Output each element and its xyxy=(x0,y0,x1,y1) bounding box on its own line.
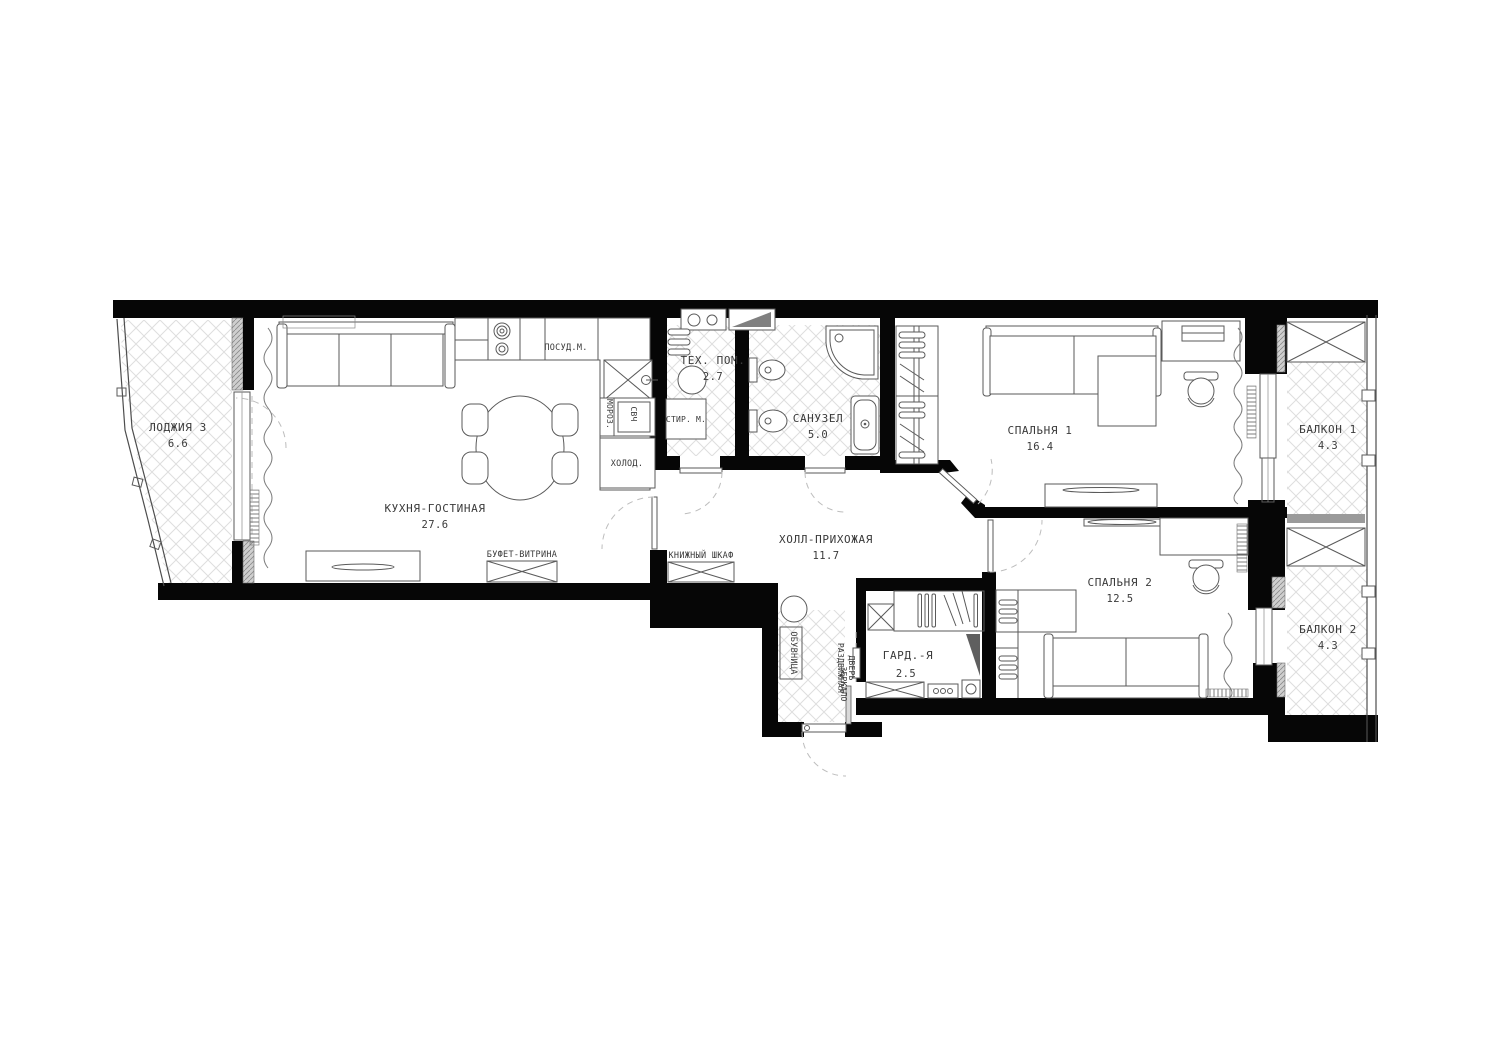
bath-door xyxy=(805,468,845,512)
bookcase xyxy=(668,562,734,582)
room-area-balcony2: 4.3 xyxy=(1318,640,1338,652)
bedroom1-window xyxy=(1260,374,1276,502)
closet-bedroom1 xyxy=(896,326,938,464)
curtain-kitchen xyxy=(264,328,272,568)
bidet-icon xyxy=(749,410,787,432)
chair-bedroom2 xyxy=(1189,560,1223,594)
balcony1-floor xyxy=(1287,362,1367,514)
furniture-bedroom2 xyxy=(996,518,1248,699)
sofa-bedroom2 xyxy=(1044,634,1208,698)
label-freezer: МОРОЗ. xyxy=(605,399,614,429)
buffet-cabinet xyxy=(487,561,557,582)
hangers-icon xyxy=(918,591,978,627)
entry-door xyxy=(802,724,846,776)
label-shoe-cabinet: ОБУВНИЦА xyxy=(788,631,798,674)
room-area-loggia3: 6.6 xyxy=(168,438,188,450)
desk-bedroom1 xyxy=(1162,321,1240,361)
label-microwave: СВЧ xyxy=(629,406,638,421)
label-dishwasher: ПОСУД.М. xyxy=(544,343,587,353)
radiator-loggia xyxy=(250,490,259,545)
room-label-wardrobe: ГАРД.-Я xyxy=(883,649,934,662)
room-area-bedroom2: 12.5 xyxy=(1107,593,1134,605)
desk-bedroom2 xyxy=(1160,518,1248,555)
tech-door xyxy=(680,468,722,514)
room-label-balcony1: БАЛКОН 1 xyxy=(1299,423,1357,436)
room-area-balcony1: 4.3 xyxy=(1318,440,1338,452)
room-area-bath: 5.0 xyxy=(808,429,828,441)
tv-console-bedroom1 xyxy=(1045,484,1157,507)
furniture-kitchen xyxy=(250,316,658,582)
toilet-icon xyxy=(749,358,785,382)
room-label-hall: ХОЛЛ-ПРИХОЖАЯ xyxy=(779,533,873,546)
room-area-bedroom1: 16.4 xyxy=(1027,441,1054,453)
wardrobe-lower-cabinet xyxy=(866,634,980,698)
floor-plan-page: ЛОДЖИЯ 3 6.6 КУХНЯ-ГОСТИНАЯ 27.6 ТЕХ. ПО… xyxy=(0,0,1500,1060)
dining-table xyxy=(462,396,578,500)
wardrobe-cabinet-x xyxy=(868,604,894,630)
boiler-icon xyxy=(678,366,706,394)
room-label-kitchen: КУХНЯ-ГОСТИНАЯ xyxy=(384,502,485,515)
label-washer: СТИР. М. xyxy=(666,415,706,424)
label-mirror: ЗЕРКАЛО xyxy=(839,666,848,701)
tv-bedroom2 xyxy=(1084,519,1160,526)
room-area-wardrobe: 2.5 xyxy=(896,668,916,680)
room-label-bedroom2: СПАЛЬНЯ 2 xyxy=(1087,576,1152,589)
label-buffet: БУФЕТ-ВИТРИНА xyxy=(487,550,557,560)
label-fridge: ХОЛОД. xyxy=(611,459,644,469)
radiator-desk-bedroom2 xyxy=(1237,524,1247,572)
corner-shelf-icon xyxy=(966,634,980,676)
room-label-balcony2: БАЛКОН 2 xyxy=(1299,623,1357,636)
room-area-kitchen: 27.6 xyxy=(422,519,449,531)
bedroom2-door xyxy=(988,520,1042,572)
label-bookcase: КНИЖНЫЙ ШКАФ xyxy=(668,549,733,561)
furniture-wardrobe xyxy=(866,591,984,698)
radiator-bedroom1 xyxy=(1247,386,1256,438)
room-label-tech: ТЕХ. ПОМ. xyxy=(680,354,745,367)
floor-plan: ЛОДЖИЯ 3 6.6 КУХНЯ-ГОСТИНАЯ 27.6 ТЕХ. ПО… xyxy=(0,0,1500,1060)
curtain-bedroom2 xyxy=(1224,613,1232,699)
pouf xyxy=(781,596,807,622)
kitchen-door xyxy=(602,497,657,549)
loggia-window xyxy=(234,392,252,540)
room-area-hall: 11.7 xyxy=(813,550,840,562)
tv-cabinet xyxy=(306,551,420,581)
sofa xyxy=(277,316,455,388)
room-area-tech: 2.7 xyxy=(703,371,723,383)
bathtub-icon xyxy=(851,396,879,454)
sink-icon xyxy=(604,360,658,400)
radiator-bedroom2 xyxy=(1206,689,1248,697)
bedroom2-window xyxy=(1256,608,1272,665)
room-label-bedroom1: СПАЛЬНЯ 1 xyxy=(1007,424,1072,437)
bed-bedroom1 xyxy=(983,326,1161,426)
room-label-loggia3: ЛОДЖИЯ 3 xyxy=(149,421,207,434)
chair-bedroom1 xyxy=(1184,372,1218,407)
room-label-bath: САНУЗЕЛ xyxy=(793,412,844,425)
